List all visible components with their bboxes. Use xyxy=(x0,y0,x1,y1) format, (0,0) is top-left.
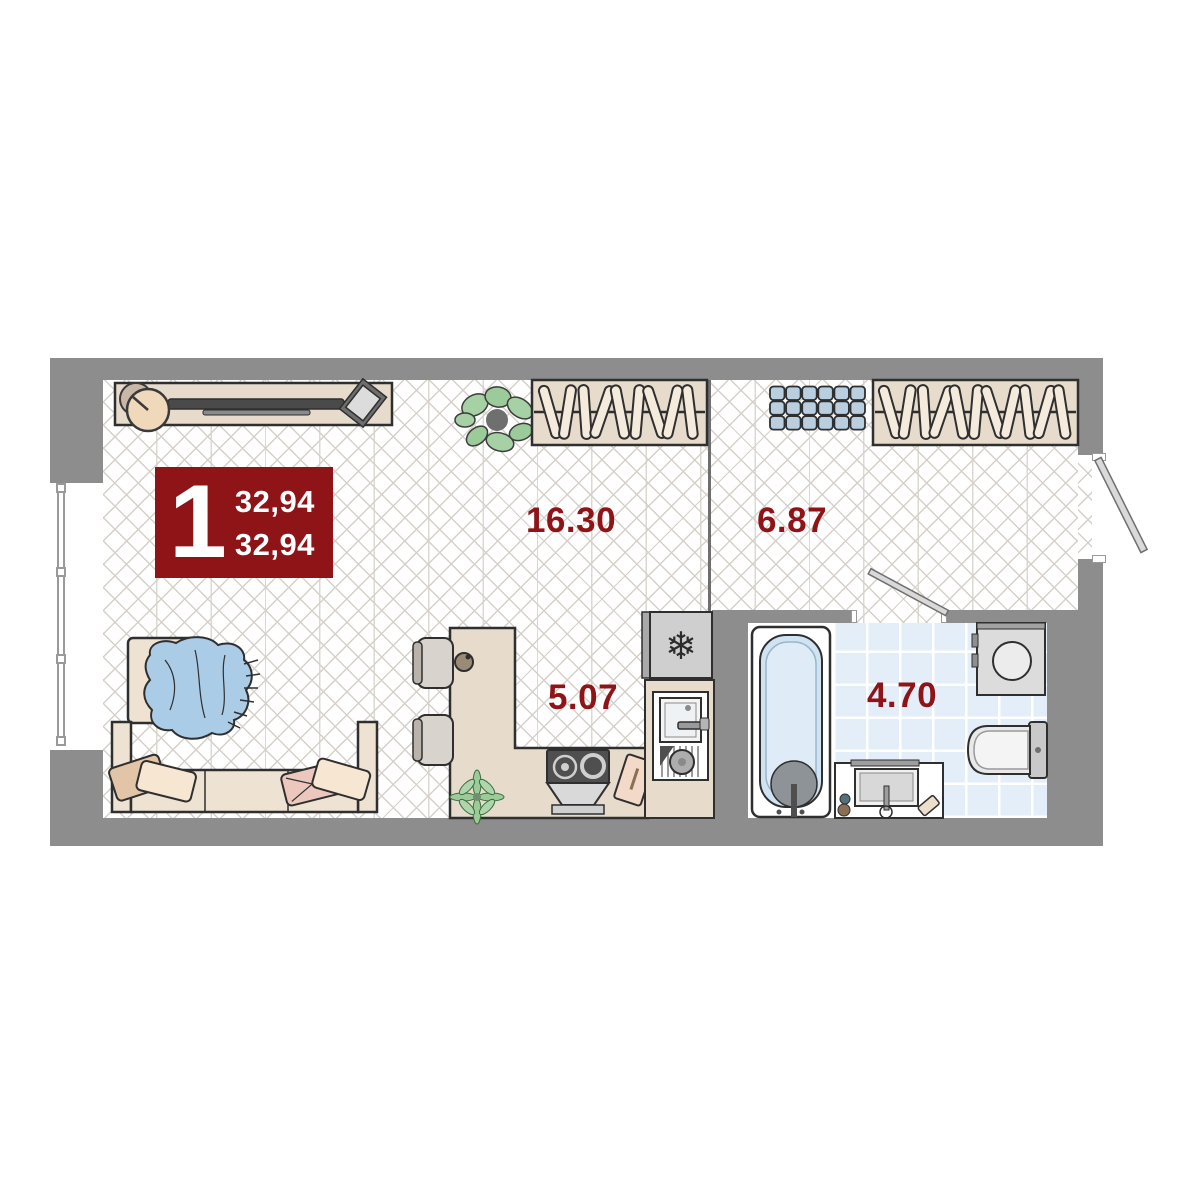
storage-box xyxy=(770,387,785,401)
storage-box xyxy=(802,401,817,415)
chair xyxy=(413,638,453,688)
storage-box xyxy=(786,401,801,415)
kitchen-sink-icon xyxy=(645,680,714,818)
wardrobe-living xyxy=(532,380,707,445)
storage-boxes xyxy=(770,387,865,430)
wardrobe-hallway xyxy=(873,380,1078,445)
storage-box xyxy=(786,387,801,401)
room-label-hallway: 6.87 xyxy=(757,501,827,541)
storage-box xyxy=(834,387,849,401)
sofa xyxy=(108,637,377,812)
storage-box xyxy=(851,387,866,401)
storage-box xyxy=(770,416,785,430)
storage-box xyxy=(818,416,833,430)
plant-icon xyxy=(455,385,537,454)
snowflake-icon: ❄ xyxy=(665,624,697,668)
storage-box xyxy=(786,416,801,430)
entrance-door-leaf xyxy=(1095,457,1147,552)
storage-box xyxy=(834,416,849,430)
storage-box xyxy=(818,401,833,415)
storage-box xyxy=(802,387,817,401)
tv-icon xyxy=(168,399,344,409)
storage-box xyxy=(834,401,849,415)
cup-icon xyxy=(455,653,473,671)
bathroom-block xyxy=(752,623,1047,818)
toilet-icon xyxy=(968,722,1047,778)
storage-box xyxy=(770,401,785,415)
room-label-kitchen: 5.07 xyxy=(548,678,618,718)
storage-box xyxy=(818,387,833,401)
furniture-layer: ❄ xyxy=(0,0,1200,1200)
room-label-living: 16.30 xyxy=(526,501,616,541)
bathroom-sink-icon xyxy=(835,760,943,818)
bathroom-door-leaf xyxy=(868,569,948,616)
living-area: 32,94 xyxy=(235,524,315,566)
stove-icon xyxy=(547,750,609,814)
kitchen-block: ❄ xyxy=(413,612,714,824)
tv-console xyxy=(115,379,392,431)
bathtub-icon xyxy=(752,627,830,817)
storage-box xyxy=(851,416,866,430)
apartment-badge: 1 32,94 32,94 xyxy=(155,467,333,578)
storage-box xyxy=(851,401,866,415)
rooms-count: 1 xyxy=(169,480,225,565)
fridge-icon: ❄ xyxy=(642,612,712,678)
blanket-icon xyxy=(144,637,260,739)
room-label-bathroom: 4.70 xyxy=(867,676,937,716)
chair xyxy=(413,715,453,765)
storage-box xyxy=(802,416,817,430)
washing-machine-icon xyxy=(972,623,1045,695)
floor-plan-canvas: ❄ xyxy=(0,0,1200,1200)
total-area: 32,94 xyxy=(235,481,315,523)
